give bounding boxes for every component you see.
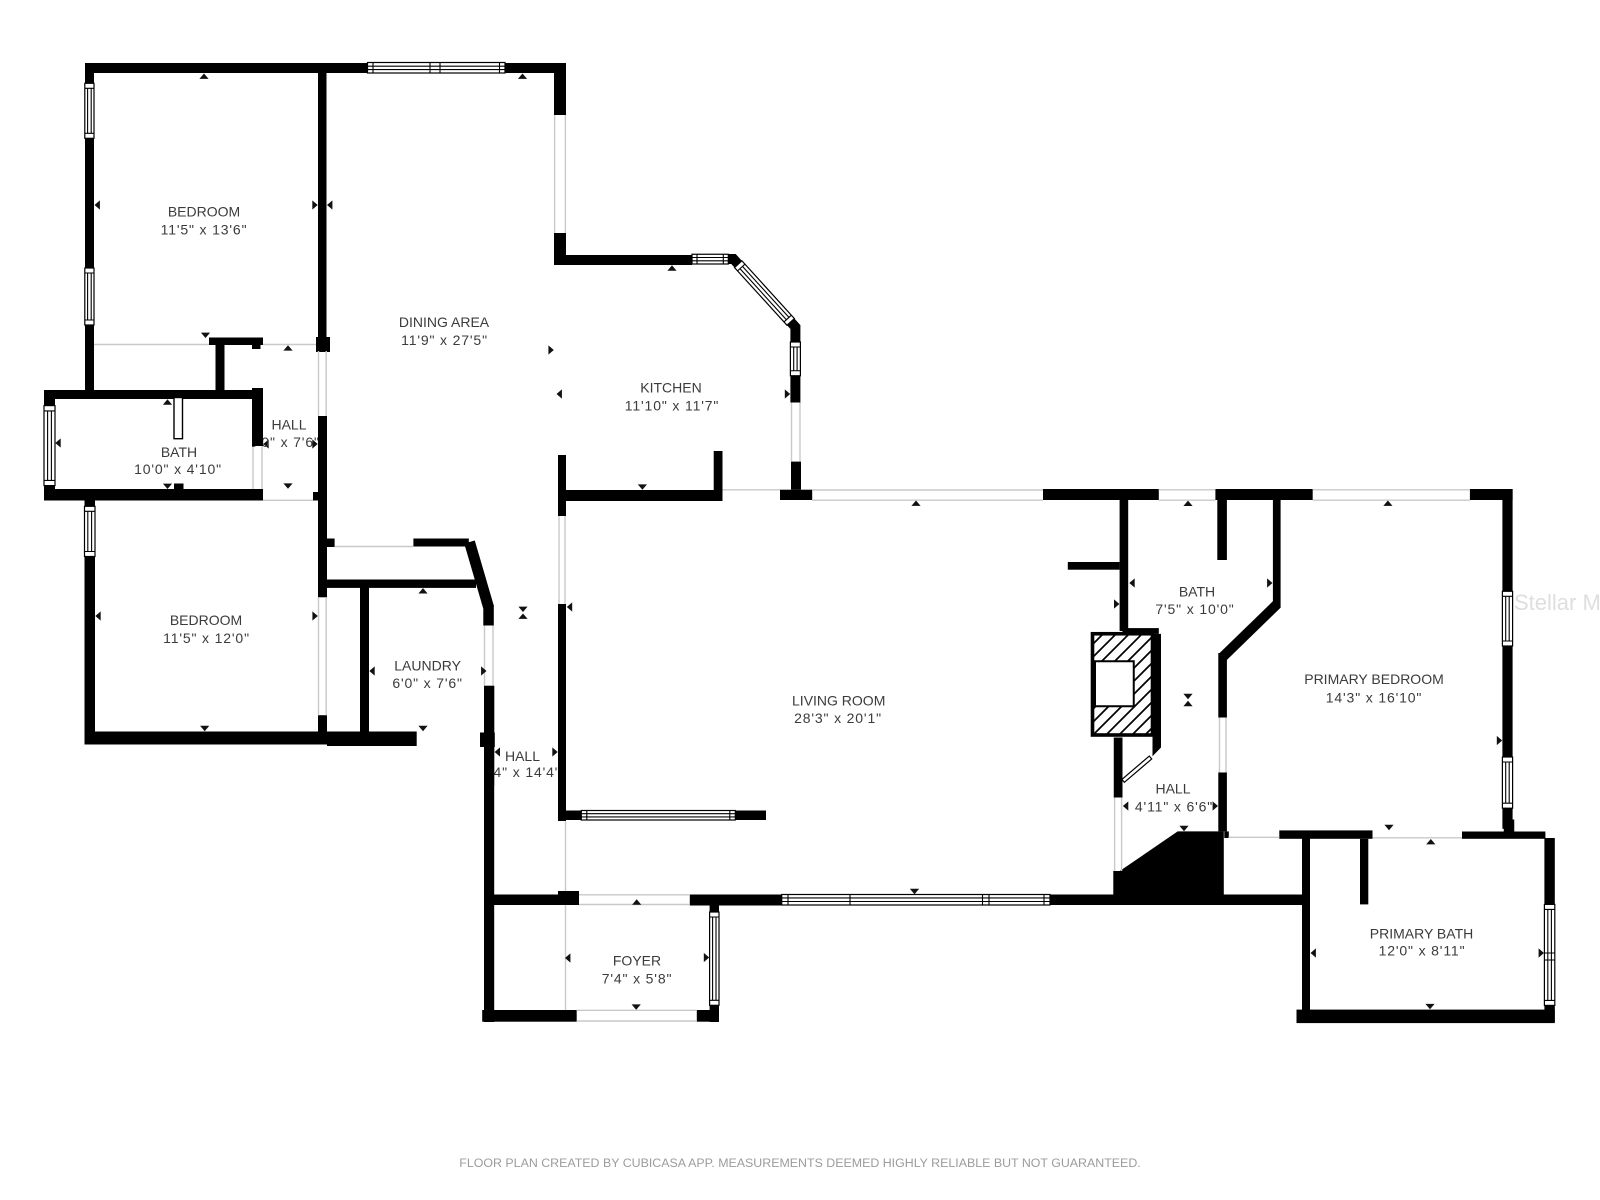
svg-text:11'10" x 11'7": 11'10" x 11'7" xyxy=(625,398,719,414)
svg-text:BATH: BATH xyxy=(161,444,197,460)
svg-text:4'11" x 6'6": 4'11" x 6'6" xyxy=(1135,799,1213,815)
svg-text:PRIMARY BATH: PRIMARY BATH xyxy=(1370,926,1473,942)
svg-text:HALL: HALL xyxy=(505,748,540,764)
svg-text:LIVING ROOM: LIVING ROOM xyxy=(792,693,885,709)
svg-text:28'3" x 20'1": 28'3" x 20'1" xyxy=(794,710,882,726)
svg-text:LAUNDRY: LAUNDRY xyxy=(394,658,461,674)
svg-text:KITCHEN: KITCHEN xyxy=(640,380,701,396)
svg-text:12'0" x 8'11": 12'0" x 8'11" xyxy=(1379,943,1466,959)
svg-text:FLOOR PLAN CREATED BY CUBICASA: FLOOR PLAN CREATED BY CUBICASA APP. MEAS… xyxy=(459,1156,1140,1170)
svg-text:11'9" x 27'5": 11'9" x 27'5" xyxy=(401,332,488,348)
svg-text:HALL: HALL xyxy=(1155,781,1190,797)
svg-text:DINING AREA: DINING AREA xyxy=(399,314,490,330)
svg-text:HALL: HALL xyxy=(271,417,306,433)
svg-text:BEDROOM: BEDROOM xyxy=(170,612,242,628)
svg-text:BEDROOM: BEDROOM xyxy=(168,204,240,220)
svg-text:Stellar MLS: Stellar MLS xyxy=(1514,590,1600,615)
svg-text:7'4" x 5'8": 7'4" x 5'8" xyxy=(602,971,673,987)
svg-text:PRIMARY BEDROOM: PRIMARY BEDROOM xyxy=(1304,671,1444,687)
svg-text:FOYER: FOYER xyxy=(613,953,661,969)
svg-text:14'3" x 16'10": 14'3" x 16'10" xyxy=(1326,690,1422,706)
svg-text:7'5" x 10'0": 7'5" x 10'0" xyxy=(1155,601,1234,617)
svg-text:10'0" x 4'10": 10'0" x 4'10" xyxy=(134,461,222,477)
svg-text:11'5" x 12'0": 11'5" x 12'0" xyxy=(163,630,250,646)
svg-text:11'5" x 13'6": 11'5" x 13'6" xyxy=(161,222,248,238)
svg-text:6'0" x 7'6": 6'0" x 7'6" xyxy=(392,675,463,691)
svg-text:BATH: BATH xyxy=(1179,584,1215,600)
